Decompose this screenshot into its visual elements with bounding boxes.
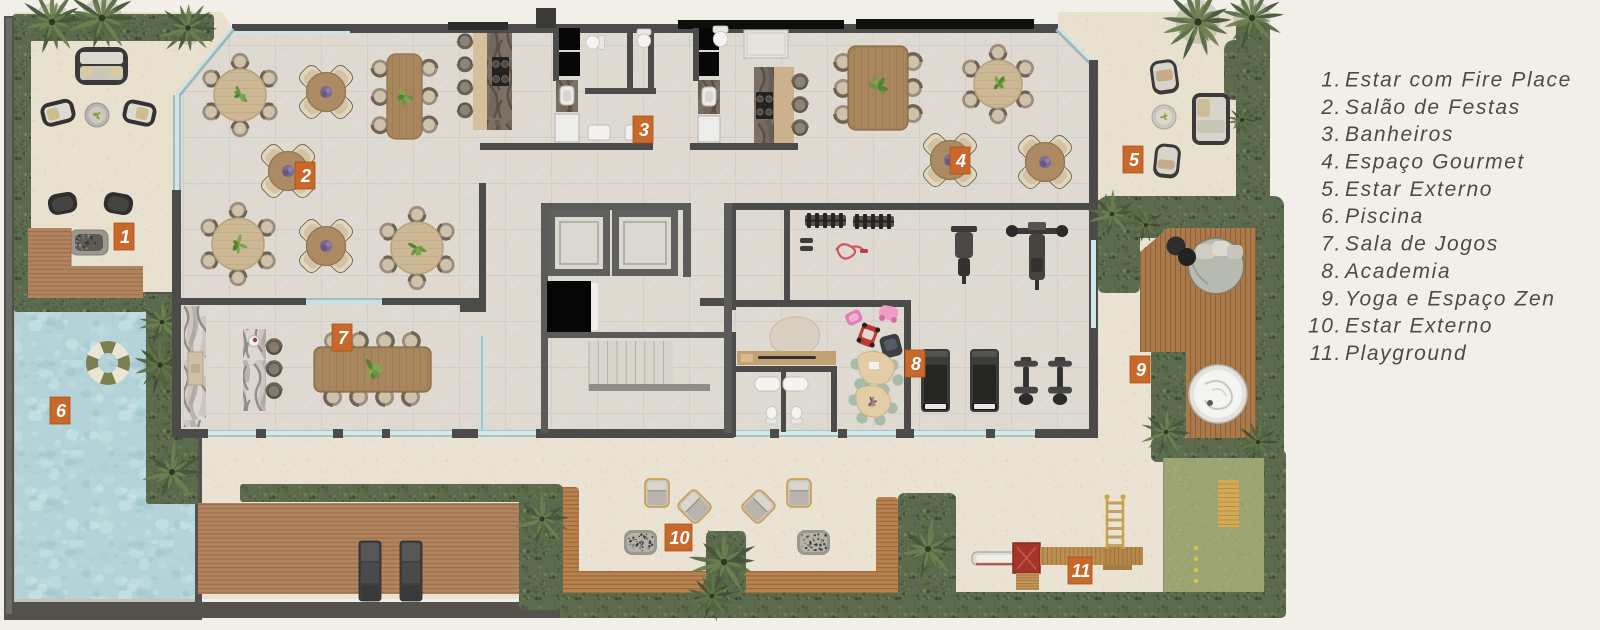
svg-text:Estar com Fire Place: Estar com Fire Place: [1345, 69, 1572, 92]
svg-text:11.: 11.: [1310, 342, 1342, 365]
svg-text:Academia: Academia: [1343, 260, 1451, 283]
svg-text:11: 11: [1072, 561, 1091, 581]
svg-text:1: 1: [120, 227, 130, 247]
svg-text:Estar Externo: Estar Externo: [1345, 178, 1493, 201]
svg-text:8: 8: [911, 354, 921, 374]
svg-text:Piscina: Piscina: [1345, 205, 1424, 228]
svg-text:5: 5: [1129, 150, 1140, 170]
svg-text:Estar Externo: Estar Externo: [1345, 315, 1493, 338]
svg-text:6.: 6.: [1321, 205, 1342, 228]
svg-text:5.: 5.: [1321, 178, 1342, 201]
svg-text:7.: 7.: [1321, 233, 1342, 256]
svg-text:Yoga e Espaço Zen: Yoga e Espaço Zen: [1345, 287, 1556, 310]
svg-text:9.: 9.: [1321, 287, 1342, 310]
svg-text:3.: 3.: [1321, 123, 1342, 146]
svg-text:Playground: Playground: [1345, 342, 1467, 365]
svg-text:Espaço Gourmet: Espaço Gourmet: [1345, 151, 1525, 174]
svg-text:6: 6: [56, 401, 67, 421]
svg-text:10.: 10.: [1308, 315, 1342, 338]
svg-text:8.: 8.: [1321, 260, 1342, 283]
svg-text:9: 9: [1136, 360, 1146, 380]
svg-text:3: 3: [639, 120, 649, 140]
svg-text:Sala de Jogos: Sala de Jogos: [1345, 233, 1499, 256]
svg-text:4.: 4.: [1321, 151, 1342, 174]
svg-text:2: 2: [300, 166, 311, 186]
svg-text:Banheiros: Banheiros: [1345, 123, 1454, 146]
svg-text:10: 10: [669, 528, 689, 548]
svg-text:1.: 1.: [1321, 69, 1342, 92]
svg-text:2.: 2.: [1320, 96, 1342, 119]
svg-text:Salão de Festas: Salão de Festas: [1345, 96, 1521, 119]
svg-text:4: 4: [955, 151, 966, 171]
svg-text:7: 7: [338, 328, 349, 348]
